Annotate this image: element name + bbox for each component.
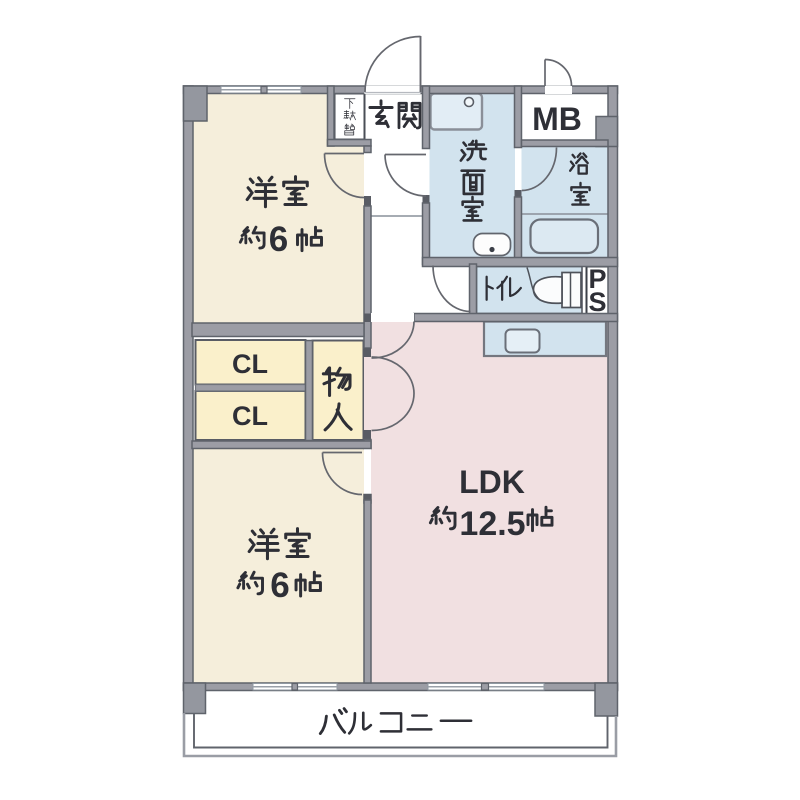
svg-text:6: 6 bbox=[270, 566, 289, 605]
svg-text:6: 6 bbox=[269, 220, 288, 259]
svg-text:CL: CL bbox=[232, 401, 268, 431]
svg-text:CL: CL bbox=[232, 349, 268, 379]
svg-text:LDK: LDK bbox=[459, 464, 525, 500]
svg-text:S: S bbox=[588, 287, 606, 317]
svg-text:MB: MB bbox=[532, 101, 582, 137]
svg-text:12.5: 12.5 bbox=[459, 505, 525, 543]
